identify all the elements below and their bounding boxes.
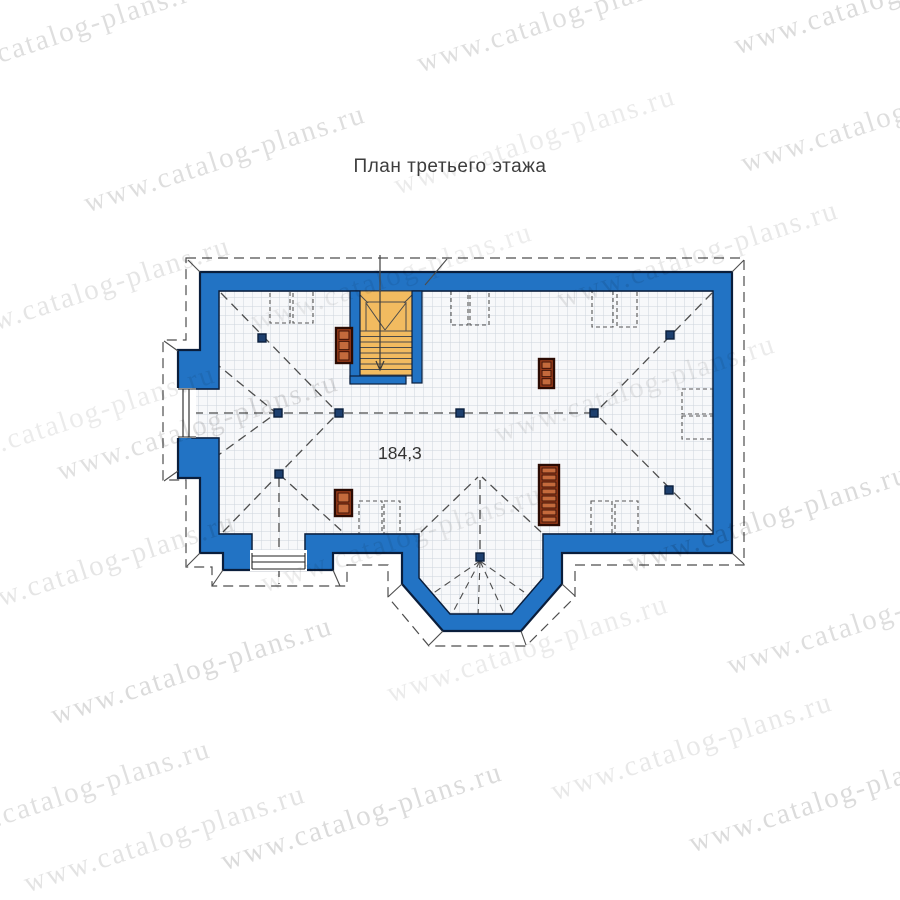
roof-post: [335, 409, 343, 417]
window-bottom-porch: [250, 550, 307, 571]
roof-post: [666, 331, 674, 339]
corner-tick: [388, 584, 402, 597]
chimney-flue: [542, 475, 556, 480]
chimney-flue: [542, 370, 551, 376]
chimney: [335, 490, 352, 516]
chimney-flue: [542, 468, 556, 473]
floor-plan-drawing: План третьего этажа 184,3: [0, 0, 900, 900]
chimney-flue: [338, 493, 349, 502]
plan-title: План третьего этажа: [354, 156, 547, 177]
window-opening: [250, 550, 307, 571]
roof-post: [258, 334, 266, 342]
window-left-niche: [176, 388, 196, 438]
chimney-flue: [339, 352, 349, 360]
corner-tick: [429, 631, 443, 645]
area-label: 184,3: [378, 443, 422, 463]
corner-tick: [732, 553, 744, 564]
roof-post: [274, 409, 282, 417]
chimney-flue: [542, 489, 556, 494]
chimney-flue: [542, 362, 551, 368]
stair-wall-bottom: [350, 376, 406, 384]
corner-tick: [212, 570, 223, 586]
corner-tick: [562, 584, 575, 596]
roof-post: [665, 486, 673, 494]
chimney: [539, 465, 559, 525]
corner-tick: [187, 553, 200, 566]
roof-post: [275, 470, 283, 478]
chimney-flue: [542, 482, 556, 487]
stair-floor: [360, 291, 412, 376]
roof-post: [476, 553, 484, 561]
window-opening: [176, 388, 196, 438]
chimney-flue: [339, 331, 349, 339]
corner-tick: [732, 260, 744, 272]
roof-post: [590, 409, 598, 417]
chimney-flue: [542, 503, 556, 508]
floor-plan-page: План третьего этажа 184,3 www.catalog-pl…: [0, 0, 900, 900]
corner-tick: [521, 631, 526, 645]
chimney-flue: [542, 496, 556, 501]
chimney-flue: [339, 341, 349, 349]
corner-tick: [188, 260, 200, 272]
roof-post: [456, 409, 464, 417]
corner-tick: [164, 341, 178, 351]
chimney: [336, 328, 352, 363]
chimney-flue: [338, 504, 349, 513]
chimney-flue: [542, 517, 556, 522]
chimney-flue: [542, 379, 551, 385]
chimney: [539, 359, 554, 388]
stair-wall-right: [412, 291, 422, 383]
corner-tick: [333, 570, 340, 586]
chimney-flue: [542, 510, 556, 515]
chimney-body: [539, 465, 559, 525]
